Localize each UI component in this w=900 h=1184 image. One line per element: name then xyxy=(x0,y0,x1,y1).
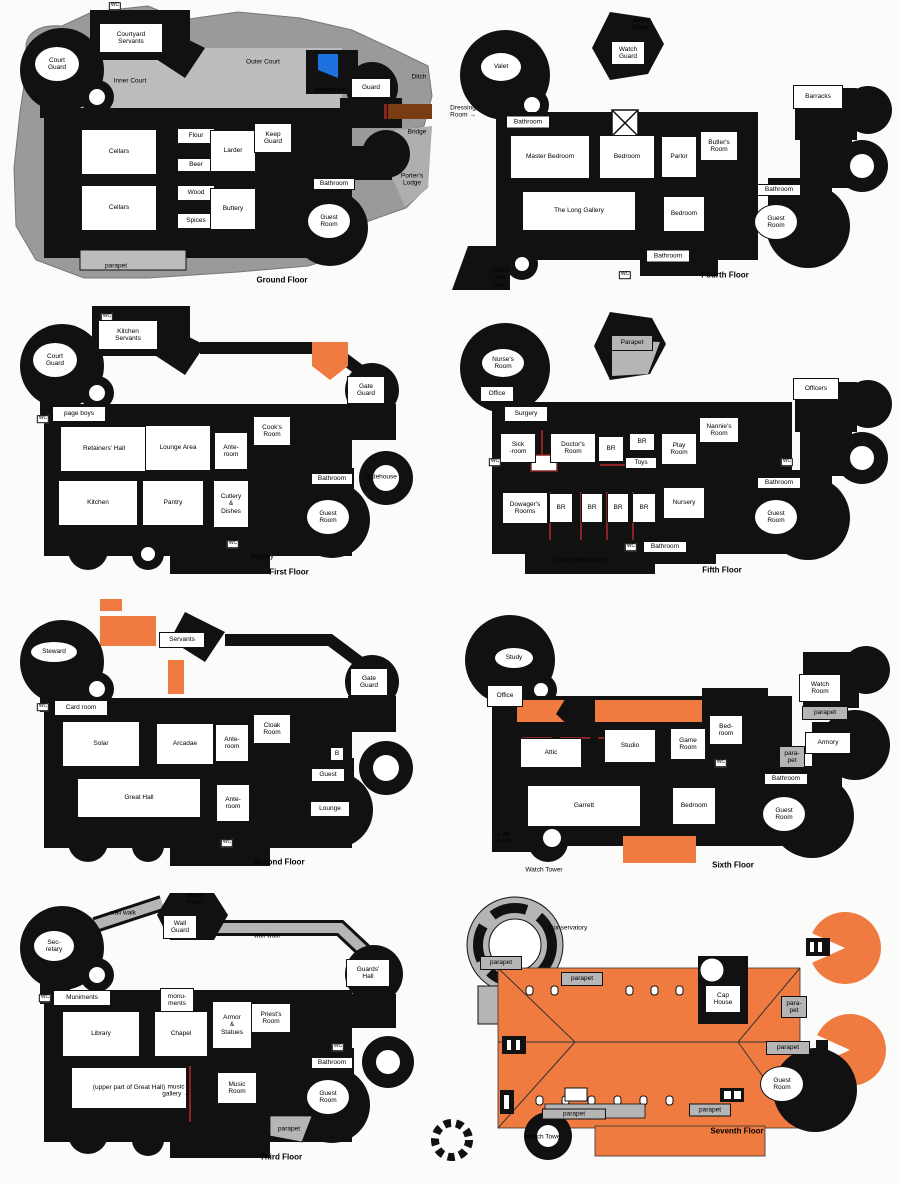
castle-floorplan-canvas: WCCourtyard ServantsCourt GuardInner Cou… xyxy=(0,0,900,1184)
area-label: wall walk xyxy=(254,932,280,939)
area-label: Bridge xyxy=(408,128,427,135)
room-label: Bed- room xyxy=(709,715,743,745)
wc-label: WC xyxy=(37,703,49,711)
room-label: Gate Guard xyxy=(350,668,388,696)
room-label: Arcadae xyxy=(156,723,214,765)
parapet-label: para- pet xyxy=(781,996,807,1018)
wc-label: WC xyxy=(39,994,51,1002)
wc-label: WC xyxy=(625,543,637,551)
room-label: Nurse's Room xyxy=(481,348,525,378)
room-label: Bathroom xyxy=(311,1057,353,1069)
room-label: Watch Guard xyxy=(611,41,645,65)
room-labels-layer: WCCourtyard ServantsCourt GuardInner Cou… xyxy=(0,0,900,1184)
parapet-label: parapet xyxy=(689,1104,731,1117)
area-label: Watch Tower xyxy=(186,893,204,908)
room-label: monu- ments xyxy=(160,988,194,1012)
room-label: Nannie's Room xyxy=(699,417,739,443)
room-label: Guards' Hall xyxy=(346,959,390,987)
area-label: parapet xyxy=(278,1125,300,1132)
area-label: Outer Court xyxy=(246,58,280,65)
room-label: Steward xyxy=(30,641,78,663)
floor-title: Ground Floor xyxy=(256,277,307,286)
room-label: BR xyxy=(581,493,603,523)
room-label: Master Bedroom xyxy=(510,135,590,179)
room-label: Play Room xyxy=(661,433,697,465)
room-label: Armor & Statues xyxy=(212,1001,252,1049)
room-label: Keep Guard xyxy=(254,123,292,153)
room-label: Nursery xyxy=(663,487,705,519)
room-label: Parlor xyxy=(661,136,697,178)
room-label: Solar xyxy=(62,721,140,767)
room-label: Music Room xyxy=(217,1072,257,1104)
room-label: Barracks xyxy=(793,85,843,109)
room-label: Attic xyxy=(520,738,582,768)
room-label: Bathroom xyxy=(506,116,550,129)
room-label: Sick -room xyxy=(500,433,536,463)
room-label: Guest Room xyxy=(760,1066,804,1102)
room-label: Larder xyxy=(210,130,256,172)
room-label: Garrett xyxy=(527,785,641,827)
area-label: Ditch xyxy=(412,73,427,80)
room-label: BR xyxy=(598,436,624,462)
wc-label: WC xyxy=(227,540,239,548)
parapet-label: para- pet xyxy=(779,746,805,768)
wc-label: WC xyxy=(109,2,121,10)
area-label: Cap House xyxy=(495,831,514,846)
wc-label: WC xyxy=(221,839,233,847)
parapet-label: Parapet xyxy=(611,335,653,351)
room-label: Office xyxy=(480,386,514,402)
room-label: Cook's Room xyxy=(253,416,291,446)
room-label: Lounge Area xyxy=(145,425,211,471)
room-label: Study xyxy=(494,647,534,669)
room-label: Surgery xyxy=(504,406,548,422)
area-label: (secret exit stair) xyxy=(490,267,510,289)
area-label: Porter's Lodge xyxy=(401,173,423,188)
room-label: Office xyxy=(487,685,523,707)
room-label: The Long Gallery xyxy=(522,191,636,231)
room-label: Bedroom xyxy=(663,196,705,232)
room-label: Studio xyxy=(604,729,656,763)
room-label: Guest Room xyxy=(306,1079,350,1115)
parapet-label: parapet xyxy=(480,956,522,970)
room-label: Library xyxy=(62,1011,140,1057)
room-label: Bathroom xyxy=(311,473,353,485)
room-label: Guest Room xyxy=(754,204,798,240)
area-label: Conservatory xyxy=(549,924,588,931)
room-label: Ante- room xyxy=(216,784,250,822)
room-label: Courtyard Servants xyxy=(99,23,163,53)
area-label: Watch Tower xyxy=(525,1133,562,1140)
room-label: Bathroom xyxy=(764,773,808,785)
room-label: Guest xyxy=(311,768,345,782)
room-label: Chapel xyxy=(154,1011,208,1057)
room-label: Armory xyxy=(805,732,851,754)
area-label: Gatehouse xyxy=(365,473,397,480)
room-label: Toys xyxy=(625,457,657,469)
room-label: Kitchen Servants xyxy=(98,320,158,350)
room-label: Muniments xyxy=(53,990,111,1006)
room-label: Butler's Room xyxy=(700,131,738,161)
room-label: Guest Room xyxy=(754,499,798,535)
room-label: BR xyxy=(632,493,656,523)
room-label: Watch Room xyxy=(799,674,841,702)
wc-label: WC xyxy=(781,458,793,466)
floor-title: Third Floor xyxy=(260,1154,302,1163)
room-label: Bathroom xyxy=(757,477,801,489)
room-label: Bathroom xyxy=(646,250,690,263)
room-label: Bathroom xyxy=(757,184,801,196)
room-label: Servants xyxy=(159,632,205,648)
room-label: Cellars xyxy=(81,129,157,175)
area-label: Inner Court xyxy=(114,77,147,84)
floor-title: Fifth Floor xyxy=(702,567,742,576)
room-label: Doctor's Room xyxy=(550,433,596,463)
room-label: BR xyxy=(549,493,573,523)
room-label: Dowager's Rooms xyxy=(502,492,548,524)
room-label: B xyxy=(330,747,344,761)
room-label: Retainers' Hall xyxy=(60,426,148,472)
room-label: Cutlery & Dishes xyxy=(213,480,249,528)
parapet-label: parapet xyxy=(802,706,848,720)
parapet-label: parapet xyxy=(561,972,603,986)
room-label: Court Guard xyxy=(34,46,80,82)
room-label: Sec- retary xyxy=(33,930,75,962)
room-label: Bedroom xyxy=(599,135,655,179)
room-label: Guest Room xyxy=(762,796,806,832)
room-label: Ante- room xyxy=(215,724,249,762)
room-label: BR xyxy=(629,433,655,451)
room-label: Court Guard xyxy=(32,342,78,378)
room-label: Valet xyxy=(480,52,522,82)
room-label: Card room xyxy=(54,700,108,716)
room-label: Pantry xyxy=(142,480,204,526)
room-label: Bathroom xyxy=(643,541,687,553)
area-label: wall walk xyxy=(110,909,136,916)
area-label: Watch Tower xyxy=(525,866,562,873)
parapet-label: parapet xyxy=(542,1109,606,1120)
room-label: Guest Room xyxy=(306,499,350,535)
wc-label: WC xyxy=(619,271,631,279)
room-label: Cloak Room xyxy=(253,714,291,744)
parapet-label: parapet xyxy=(766,1041,810,1055)
room-label: Great Hall xyxy=(77,778,201,818)
room-label: Lounge xyxy=(310,801,350,817)
area-label: Bathhouse xyxy=(314,86,345,93)
wc-label: WC xyxy=(332,1043,344,1051)
room-label: Guest Room xyxy=(307,203,351,239)
room-label: Wall Guard xyxy=(163,915,197,939)
room-label: Priest's Room xyxy=(251,1003,291,1033)
floor-title: Second Floor xyxy=(253,859,304,868)
room-label: Buttery xyxy=(210,188,256,230)
area-label: Garrett Bedrooms xyxy=(554,556,606,563)
room-label: Cap House xyxy=(705,985,741,1013)
wc-label: WC xyxy=(37,415,49,423)
room-label: Guard xyxy=(351,78,391,98)
area-label: Dressing Room → xyxy=(450,105,476,120)
room-label: Officers xyxy=(793,378,839,400)
room-label: Gate Guard xyxy=(347,376,385,404)
floor-title: Fourth Floor xyxy=(701,272,749,281)
area-label: Watch Tower xyxy=(631,18,649,33)
wc-label: WC xyxy=(489,458,501,466)
room-label: Ante- room xyxy=(214,432,248,470)
room-label: Kitchen xyxy=(58,480,138,526)
floor-title: Seventh Floor xyxy=(710,1128,763,1137)
room-label: Bedroom xyxy=(672,787,716,825)
room-label: Cellars xyxy=(81,185,157,231)
area-label: Scullery xyxy=(250,553,273,560)
room-label: BR xyxy=(607,493,629,523)
floor-title: First Floor xyxy=(269,569,309,578)
room-label: Bathroom xyxy=(313,178,355,190)
wc-label: WC xyxy=(715,759,727,767)
area-label: music gallery → xyxy=(162,1084,189,1099)
floor-title: Sixth Floor xyxy=(712,862,754,871)
room-label: page boys xyxy=(52,406,106,422)
room-label: Game Room xyxy=(670,728,706,760)
area-label: parapet xyxy=(105,262,127,269)
